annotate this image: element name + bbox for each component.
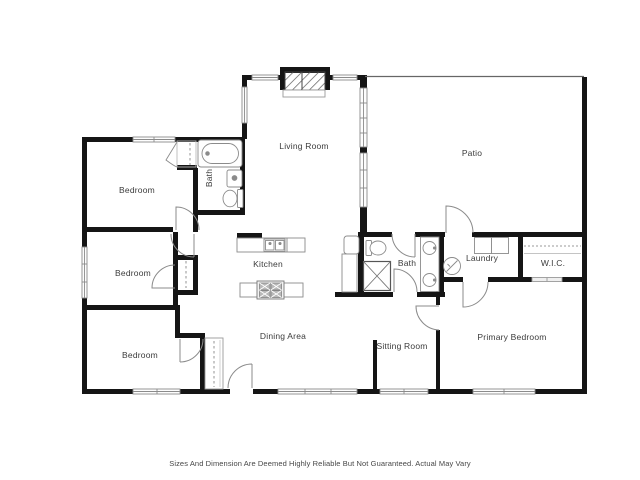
room-label-living-room: Living Room [279,141,328,151]
room-label-bedroom-2: Bedroom [115,268,151,278]
closet-icon [205,338,223,389]
shower-icon [364,262,391,291]
toilet-icon [223,190,243,208]
vanity-sinks-icon [421,237,440,292]
bathtub-icon [198,140,242,167]
closet-icon [166,141,196,167]
walls [82,75,587,394]
room-label-wic: W.I.C. [541,258,565,268]
washer-icon [444,258,461,275]
room-label-patio: Patio [462,148,482,158]
closet-rod-icon [524,246,581,254]
room-label-laundry: Laundry [466,253,498,263]
room-label-bedroom-1: Bedroom [119,185,155,195]
toilet-icon [366,241,386,256]
laundry-machines [475,238,509,254]
sink-icon [227,170,242,187]
disclaimer-text: Sizes And Dimension Are Deemed Highly Re… [0,459,640,468]
room-label-bedroom-3: Bedroom [122,350,158,360]
kitchen-sink-icon [264,239,285,252]
fireplace-icon [280,67,330,97]
windows [82,75,535,394]
floor-plan [0,0,640,480]
room-label-sitting-room: Sitting Room [376,341,427,351]
floor-plan-page: Living Room Patio Bedroom Bath Bedroom K… [0,0,640,480]
room-label-dining-area: Dining Area [260,331,306,341]
stove-icon [257,281,284,299]
room-label-bath-2: Bath [398,258,416,268]
room-label-kitchen: Kitchen [253,259,283,269]
bifold-door-icon [532,278,562,282]
refrigerator-icon [342,236,359,292]
room-label-primary-bedroom: Primary Bedroom [477,332,546,342]
room-label-bath-1: Bath [204,169,214,187]
